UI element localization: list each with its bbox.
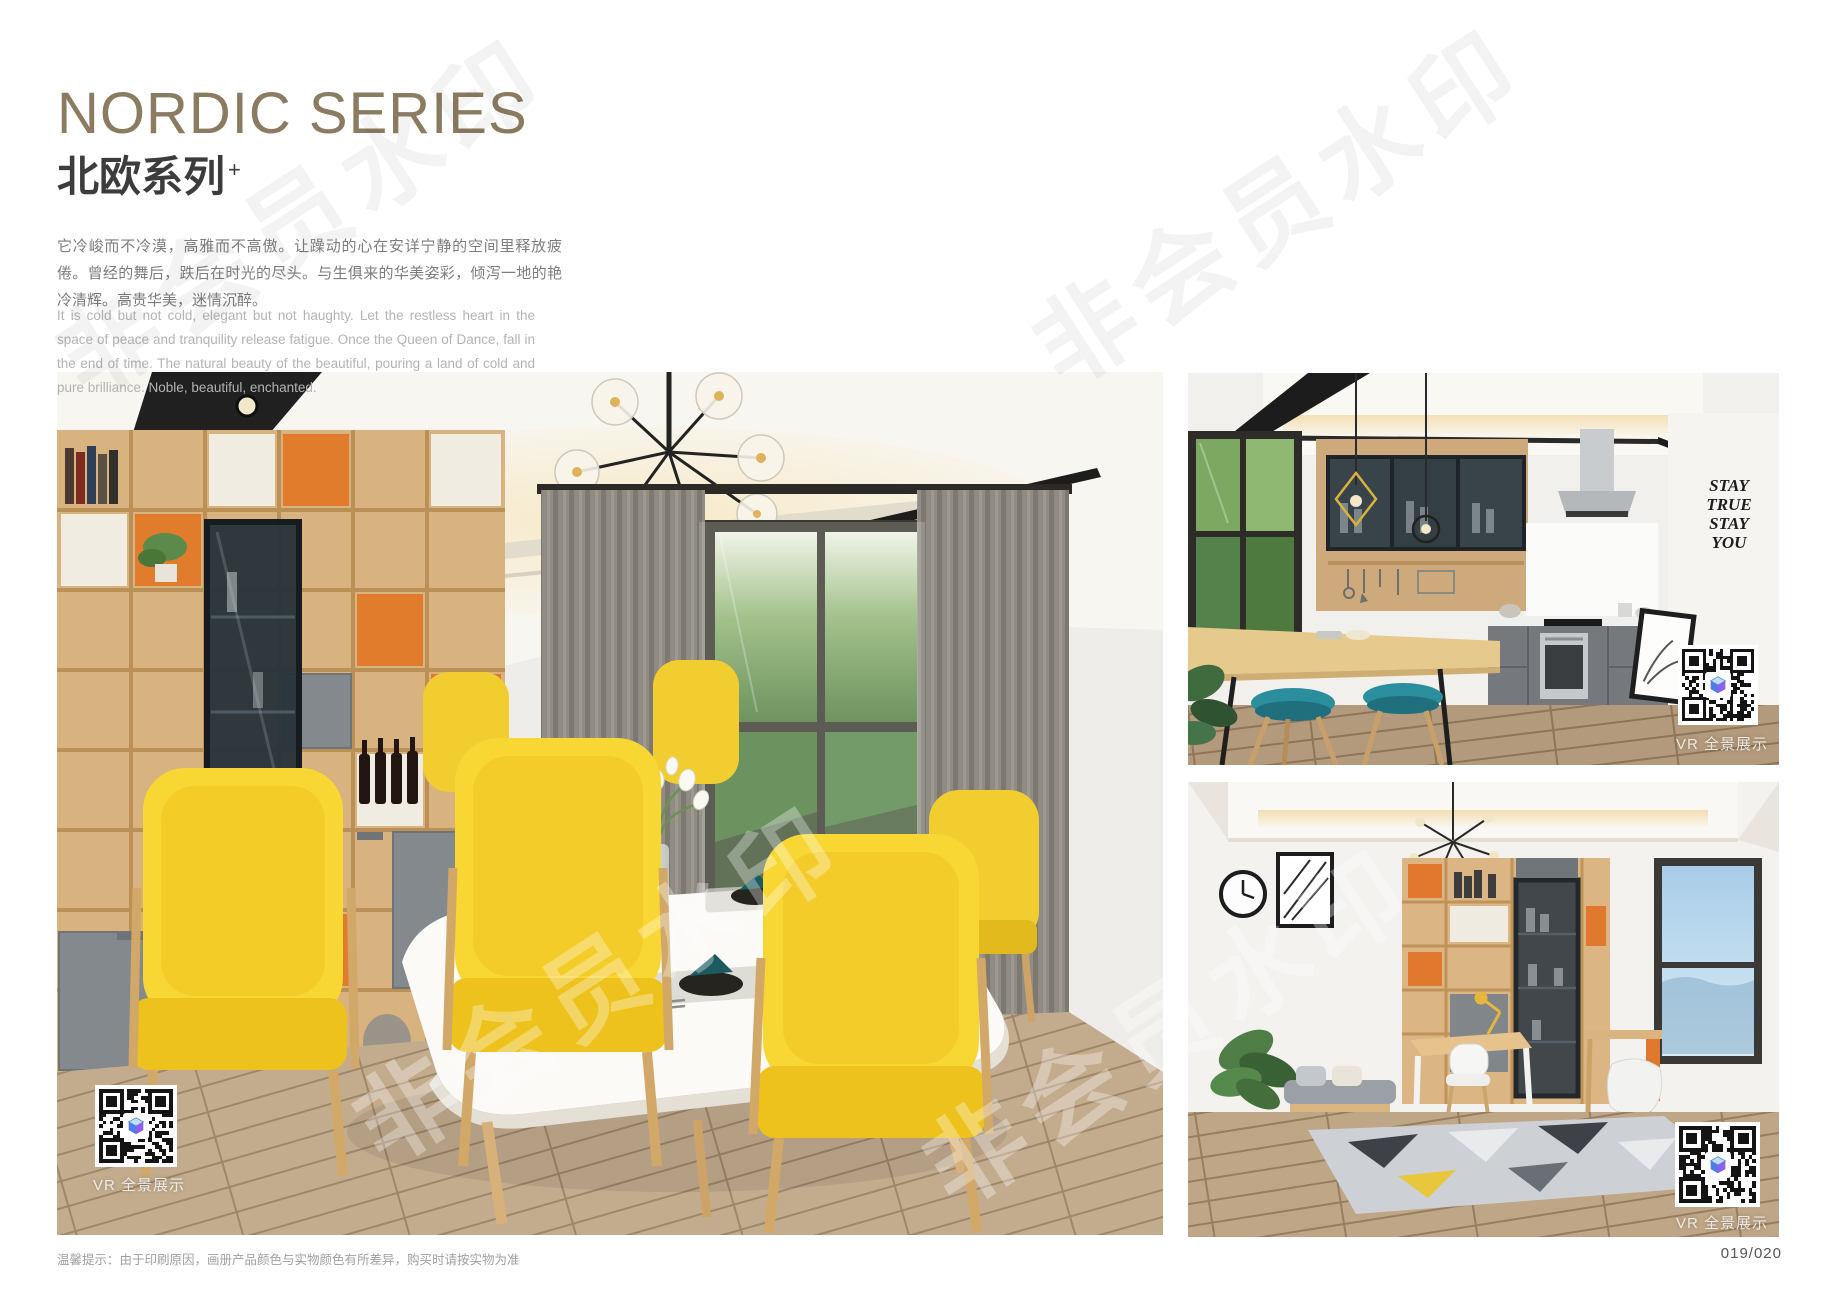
vr-cube-logo-icon xyxy=(123,1113,149,1139)
dining-room-illustration xyxy=(57,372,1163,1235)
page-number: 019/020 xyxy=(1721,1245,1782,1262)
svg-text:TRUE: TRUE xyxy=(1706,495,1751,514)
vr-cube-logo-icon xyxy=(1705,1152,1731,1178)
catalog-page: NORDIC SERIES 北欧系列+ 它冷峻而不冷漠，高雅而不高傲。让躁动的心… xyxy=(0,0,1836,1307)
study-shelving-unit xyxy=(1402,858,1610,1104)
page-title: NORDIC SERIES xyxy=(57,84,528,144)
vr-caption: VR 全景展示 xyxy=(93,1174,185,1195)
study-window xyxy=(1654,858,1762,1064)
vr-caption: VR 全景展示 xyxy=(1676,733,1768,754)
kitchen-window xyxy=(1188,431,1302,645)
wall-art-frame xyxy=(1278,854,1332,926)
intro-paragraph-en: It is cold but not cold, elegant but not… xyxy=(57,304,535,400)
watermark: 非会员水印 xyxy=(1001,0,1550,414)
svg-text:YOU: YOU xyxy=(1712,533,1748,552)
qr-code xyxy=(95,1085,177,1167)
upper-cabinet xyxy=(1316,439,1528,611)
vr-cube-logo-icon xyxy=(1705,672,1731,698)
qr-code xyxy=(1678,645,1758,725)
kitchen-photo: STAY TRUE STAY YOU xyxy=(1188,373,1779,765)
subtitle-plus-mark: + xyxy=(228,157,241,182)
qr-code xyxy=(1675,1122,1760,1207)
study-room-photo: VR 全景展示 xyxy=(1188,782,1779,1237)
books xyxy=(65,446,118,504)
vr-caption: VR 全景展示 xyxy=(1676,1212,1768,1233)
page-subtitle: 北欧系列+ xyxy=(57,146,241,201)
wall-clock xyxy=(1221,872,1265,916)
svg-text:STAY: STAY xyxy=(1709,476,1750,495)
wall-decal: STAY TRUE STAY YOU xyxy=(1706,476,1751,552)
intro-paragraph-zh: 它冷峻而不冷漠，高雅而不高傲。让躁动的心在安详宁静的空间里释放疲倦。曾经的舞后，… xyxy=(57,233,562,314)
print-disclaimer: 温馨提示：由于印刷原因，画册产品颜色与实物颜色有所差异，购买时请按实物为准 xyxy=(57,1249,520,1268)
dining-room-photo: VR 全景展示 xyxy=(57,372,1163,1235)
svg-text:STAY: STAY xyxy=(1709,514,1750,533)
subtitle-text: 北欧系列 xyxy=(57,153,225,200)
